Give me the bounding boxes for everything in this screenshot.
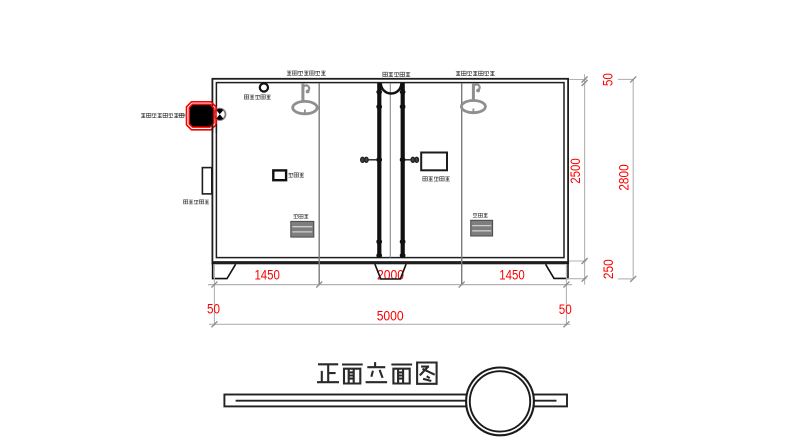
svg-text:50: 50	[600, 73, 616, 86]
svg-text:2800: 2800	[616, 164, 632, 190]
svg-text:2000: 2000	[377, 267, 404, 283]
svg-text:2500: 2500	[567, 158, 583, 184]
svg-text:1450: 1450	[499, 267, 525, 283]
svg-text:5000: 5000	[377, 307, 404, 323]
svg-text:50: 50	[207, 300, 220, 316]
svg-text:50: 50	[559, 301, 572, 317]
svg-text:1450: 1450	[254, 267, 280, 283]
svg-text:250: 250	[600, 259, 616, 279]
